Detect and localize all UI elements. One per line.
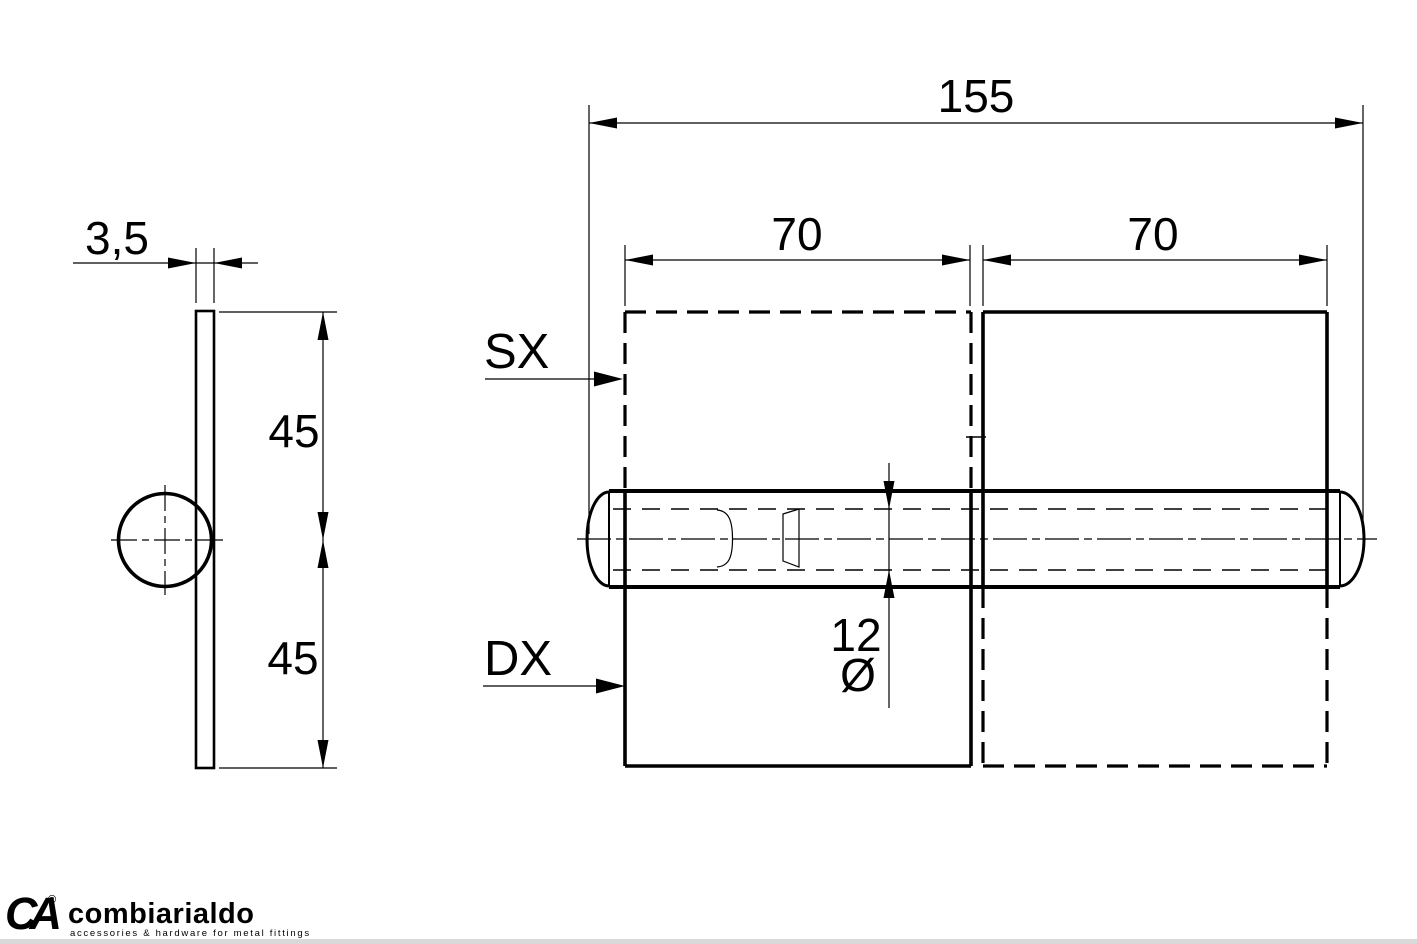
arrowhead: [318, 540, 329, 568]
hinge-drawing-canvas: 3,5 45 45: [0, 0, 1417, 944]
arrowhead: [589, 118, 617, 129]
technical-drawing-page: 3,5 45 45: [0, 0, 1417, 944]
arrowhead: [884, 481, 895, 509]
arrowhead: [942, 255, 970, 266]
leader-arrowhead: [596, 679, 625, 694]
label-sx-text: SX: [484, 325, 549, 379]
diameter-symbol: Ø: [840, 649, 876, 701]
logo-registered-icon: ®: [48, 894, 56, 906]
label-dx-text: DX: [484, 632, 552, 686]
dim-left-leaf-width-value: 70: [771, 208, 822, 260]
label-sx: SX: [484, 325, 623, 387]
dim-right-leaf-width-value: 70: [1127, 208, 1178, 260]
dim-total-length-value: 155: [938, 70, 1015, 122]
arrowhead: [884, 570, 895, 598]
front-view: [577, 312, 1377, 766]
logo-tagline: accessories & hardware for metal fitting…: [70, 928, 311, 939]
dim-lower-height-value: 45: [267, 632, 318, 684]
logo-brand-name: combiarialdo: [68, 898, 255, 930]
arrowhead: [983, 255, 1011, 266]
arrowhead: [1299, 255, 1327, 266]
bushing-detail-trapezoid: [783, 509, 799, 567]
side-view: [111, 311, 226, 768]
dim-plate-thickness-value: 3,5: [85, 212, 149, 264]
dim-left-leaf-width: 70: [625, 208, 970, 306]
leader-arrowhead: [594, 372, 623, 387]
dim-upper-leaf-height: 45: [219, 312, 337, 540]
dim-plate-thickness: 3,5: [73, 212, 258, 303]
arrowhead: [318, 312, 329, 340]
dim-lower-leaf-height: 45: [219, 540, 337, 768]
bottom-edge-strip: [0, 939, 1417, 944]
arrowhead: [318, 512, 329, 540]
arrowhead: [1335, 118, 1363, 129]
arrowhead: [214, 258, 242, 269]
arrowhead: [168, 258, 196, 269]
dim-right-leaf-width: 70: [983, 208, 1327, 306]
logo: CA ® combiarialdo accessories & hardware…: [5, 888, 311, 939]
arrowhead: [625, 255, 653, 266]
dim-upper-height-value: 45: [268, 405, 319, 457]
dim-total-length: 155: [589, 70, 1363, 534]
arrowhead: [318, 740, 329, 768]
label-dx: DX: [483, 632, 625, 694]
